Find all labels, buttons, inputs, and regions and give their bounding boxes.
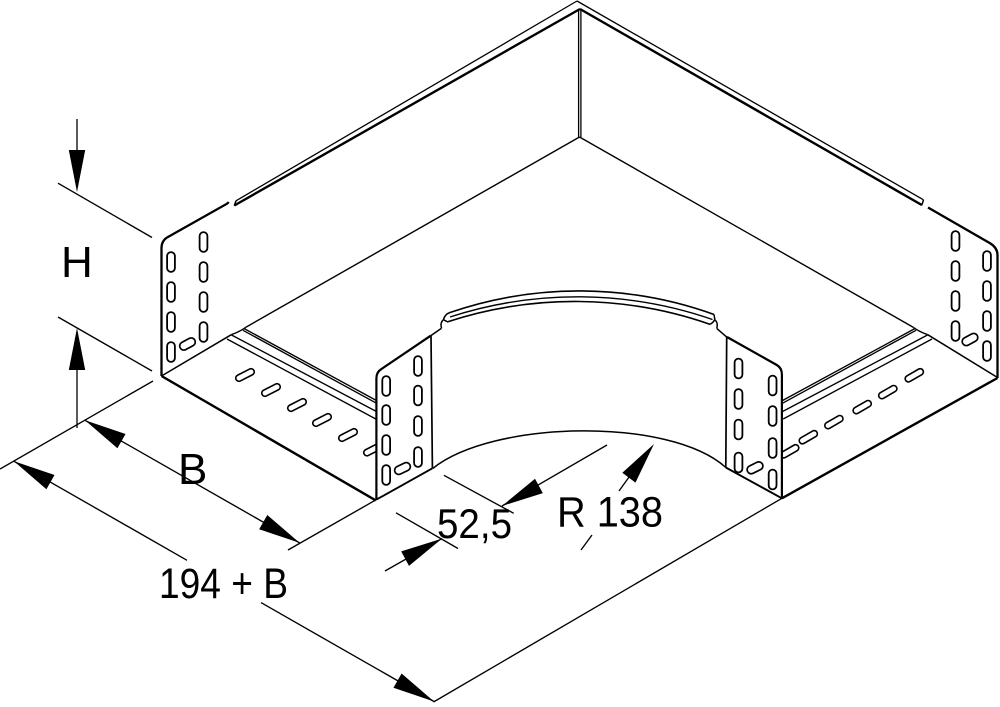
svg-text:52,5: 52,5 bbox=[437, 500, 512, 547]
svg-text:H: H bbox=[61, 238, 93, 287]
svg-text:B: B bbox=[178, 445, 207, 494]
svg-text:194 + B: 194 + B bbox=[159, 561, 288, 608]
svg-text:R 138: R 138 bbox=[557, 490, 663, 537]
